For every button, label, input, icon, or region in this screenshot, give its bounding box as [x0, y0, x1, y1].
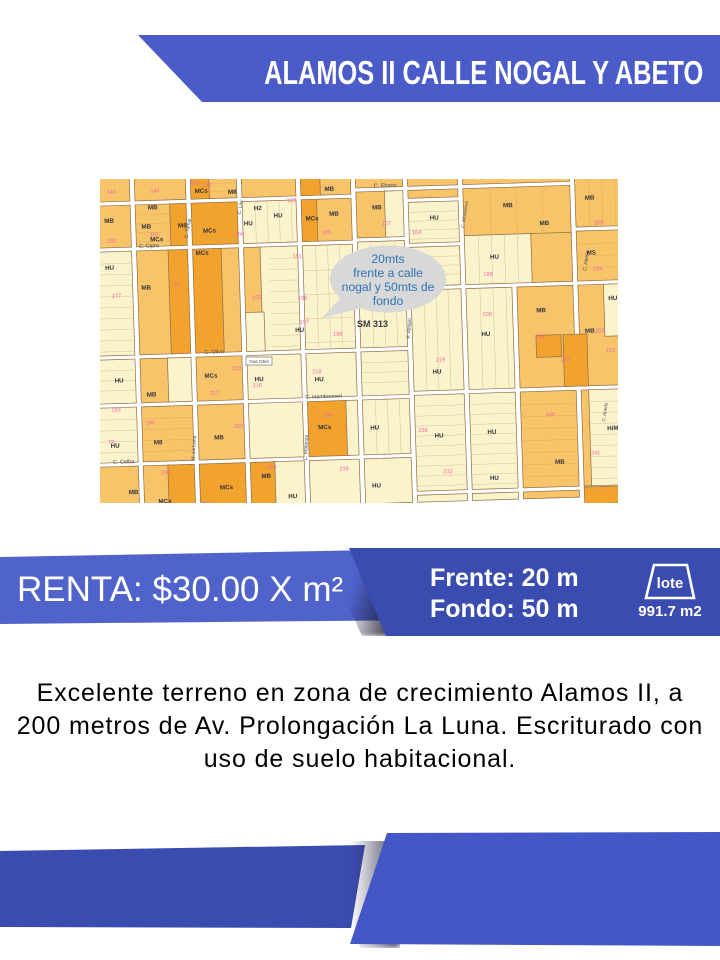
svg-text:164: 164	[593, 266, 603, 272]
svg-text:MCs: MCs	[204, 372, 218, 379]
svg-text:238: 238	[418, 428, 428, 434]
svg-text:199: 199	[483, 272, 493, 278]
svg-text:MCs: MCs	[318, 424, 332, 431]
svg-text:MB: MB	[147, 391, 157, 398]
svg-text:MB: MB	[585, 195, 595, 202]
svg-text:218: 218	[312, 369, 322, 375]
svg-text:HU: HU	[487, 429, 497, 436]
svg-text:HU: HU	[432, 368, 442, 375]
svg-text:166: 166	[252, 295, 262, 301]
svg-text:239: 239	[339, 466, 349, 472]
svg-text:197: 197	[300, 320, 310, 326]
svg-text:HU: HU	[430, 214, 440, 221]
svg-text:MB: MB	[261, 473, 271, 480]
svg-text:219: 219	[436, 357, 446, 363]
svg-text:145: 145	[190, 181, 200, 187]
svg-text:250: 250	[234, 424, 244, 430]
svg-text:M8: M8	[228, 189, 237, 196]
svg-text:198: 198	[333, 332, 343, 338]
svg-text:222: 222	[606, 348, 616, 354]
svg-text:MCs: MCs	[158, 498, 172, 503]
svg-text:177: 177	[112, 293, 122, 299]
svg-text:HU: HU	[288, 493, 298, 500]
svg-text:160: 160	[107, 239, 117, 245]
svg-text:HU: HU	[481, 331, 491, 338]
svg-text:201: 201	[535, 334, 545, 340]
svg-text:MB: MB	[129, 489, 139, 496]
svg-text:HU: HU	[273, 212, 283, 219]
svg-text:HU: HU	[490, 254, 500, 261]
svg-text:HU: HU	[315, 376, 325, 383]
svg-text:248: 248	[161, 470, 171, 476]
svg-text:Gas Obel: Gas Obel	[249, 359, 268, 364]
svg-text:C. Hambooneri: C. Hambooneri	[305, 394, 342, 401]
svg-text:HU: HU	[490, 475, 500, 482]
svg-text:246: 246	[146, 420, 156, 426]
svg-text:MB: MB	[503, 202, 513, 209]
svg-text:HU: HU	[115, 377, 125, 384]
svg-text:C. Cipre: C. Cipre	[139, 243, 159, 250]
svg-text:MCs: MCs	[203, 227, 217, 234]
svg-text:151: 151	[293, 254, 303, 260]
svg-text:MCs: MCs	[196, 250, 210, 257]
svg-text:frente a calle: frente a calle	[353, 266, 423, 280]
svg-text:nogal y 50mts de: nogal y 50mts de	[342, 280, 435, 294]
svg-text:MB: MB	[104, 218, 114, 225]
svg-text:76: 76	[173, 282, 179, 288]
svg-text:fondo: fondo	[373, 294, 404, 308]
svg-text:140: 140	[106, 190, 116, 196]
svg-text:254: 254	[267, 465, 277, 471]
svg-text:MB: MB	[141, 223, 151, 230]
svg-text:227: 227	[561, 357, 571, 363]
svg-text:HU: HU	[105, 265, 115, 272]
svg-text:H2: H2	[254, 205, 263, 212]
svg-text:MCs: MCs	[220, 484, 234, 491]
svg-text:152: 152	[202, 183, 212, 189]
svg-text:163: 163	[287, 198, 297, 204]
svg-text:MB: MB	[536, 307, 546, 314]
svg-text:MB: MB	[555, 459, 565, 466]
svg-text:SM 313: SM 313	[357, 319, 388, 329]
svg-text:lote: lote	[657, 575, 684, 592]
svg-text:202: 202	[595, 328, 605, 334]
svg-text:MB: MB	[141, 284, 151, 291]
svg-text:241: 241	[591, 450, 601, 456]
svg-text:HiM: HiM	[607, 425, 618, 432]
svg-text:C. Ebano: C. Ebano	[374, 183, 397, 190]
svg-text:215: 215	[232, 366, 242, 372]
svg-text:MB: MB	[148, 204, 158, 211]
svg-text:M. La Luna: M. La Luna	[191, 435, 198, 461]
svg-text:MB: MB	[585, 328, 595, 335]
svg-text:196: 196	[298, 296, 308, 302]
svg-text:161: 161	[150, 232, 160, 238]
svg-text:C. Celba: C. Celba	[113, 459, 136, 466]
svg-text:C. Olivo: C. Olivo	[204, 349, 224, 356]
svg-text:167: 167	[382, 221, 392, 227]
svg-text:M8: M8	[154, 439, 163, 446]
svg-text:MB: MB	[329, 211, 339, 218]
svg-text:HU: HU	[370, 424, 380, 431]
svg-text:240: 240	[546, 412, 556, 418]
svg-text:MB: MB	[372, 204, 382, 211]
svg-text:MB: MB	[539, 220, 549, 227]
svg-text:150: 150	[235, 232, 245, 238]
svg-text:79: 79	[108, 440, 114, 446]
svg-text:164: 164	[412, 230, 422, 236]
svg-text:20mts: 20mts	[371, 252, 404, 266]
svg-text:F. Abispo: F. Abispo	[406, 318, 413, 339]
svg-text:234: 234	[324, 413, 334, 419]
svg-text:HU: HU	[244, 220, 254, 227]
svg-text:HU: HU	[434, 432, 444, 439]
svg-text:193: 193	[111, 408, 121, 414]
svg-text:MB: MB	[324, 186, 334, 193]
svg-text:142: 142	[150, 188, 160, 194]
svg-text:HU: HU	[372, 482, 382, 489]
svg-text:165: 165	[322, 230, 332, 236]
svg-text:MB: MB	[214, 434, 224, 441]
svg-text:MCs: MCs	[305, 215, 319, 222]
svg-text:232: 232	[443, 469, 453, 475]
svg-text:216: 216	[253, 383, 263, 389]
svg-text:217: 217	[210, 390, 220, 396]
svg-text:252: 252	[200, 501, 210, 503]
svg-text:HU: HU	[608, 295, 618, 302]
svg-text:HU: HU	[295, 327, 305, 334]
svg-text:200: 200	[482, 312, 492, 318]
svg-text:169: 169	[594, 220, 604, 226]
